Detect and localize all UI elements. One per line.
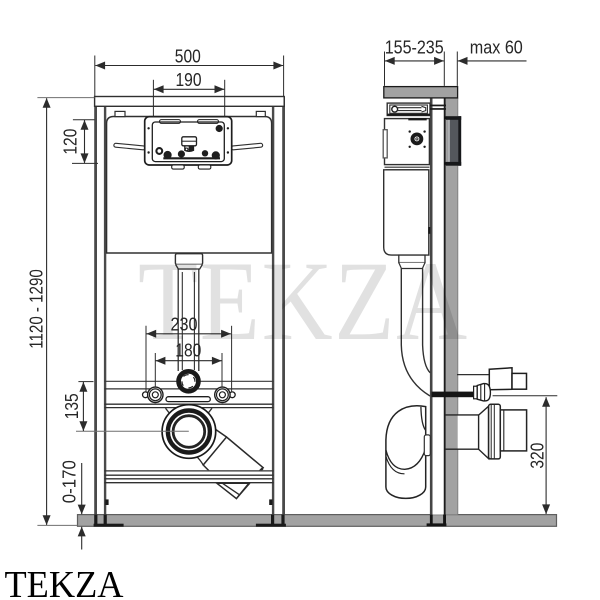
- svg-text:0-170: 0-170: [60, 460, 80, 503]
- svg-text:max 60: max 60: [470, 38, 523, 58]
- svg-text:1120 - 1290: 1120 - 1290: [27, 269, 47, 349]
- svg-text:190: 190: [176, 70, 202, 90]
- svg-text:500: 500: [175, 47, 201, 67]
- svg-text:135: 135: [62, 393, 82, 419]
- svg-text:155-235: 155-235: [385, 37, 444, 57]
- svg-text:120: 120: [60, 129, 80, 155]
- svg-text:TEKZA: TEKZA: [5, 564, 125, 600]
- svg-text:TEKZA: TEKZA: [138, 239, 469, 364]
- svg-text:320: 320: [527, 443, 547, 469]
